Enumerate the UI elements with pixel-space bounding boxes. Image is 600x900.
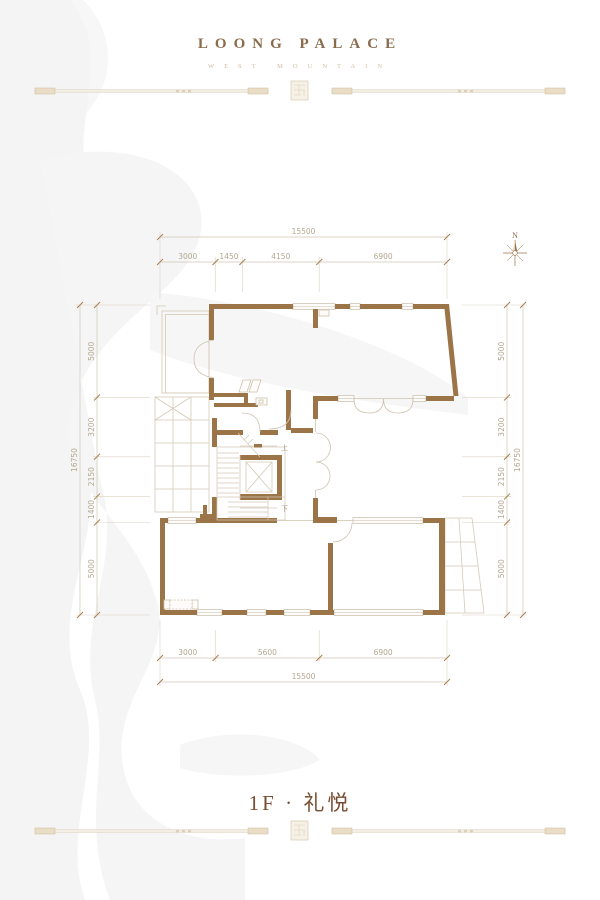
dim-label: 3200 [87,417,96,436]
rule-endcap [248,828,268,834]
dim-label: 5000 [497,342,506,361]
dim-label: 3200 [497,417,506,436]
floor-plan-svg: 上 下 N 1550030001450415069003000560069001… [0,0,600,900]
dim-label: 5000 [497,559,506,578]
dim-label: 16750 [513,448,522,472]
dim-label: 15500 [292,672,316,681]
dim-label: 6900 [374,252,393,261]
rule-endcap [332,88,352,94]
dim-label: 1450 [219,252,238,261]
dim-label: 3000 [178,648,197,657]
dimension-row: 15500 [157,672,450,685]
dim-label: 6900 [374,648,393,657]
dim-label: 4150 [271,252,290,261]
dimension-row: 300056006900 [157,648,450,661]
dimension-row: 3000145041506900 [157,252,450,265]
compass-north-label: N [512,231,518,240]
dim-label: 2150 [87,467,96,486]
rule-endcap [545,88,565,94]
trellis-grid-left [155,397,209,512]
rule-endcap [545,828,565,834]
dim-label: 16750 [70,448,79,472]
header: LOONG PALACE WEST MOUNTAIN [0,36,600,70]
dimension-column: 50003200215014005000 [497,302,510,618]
dim-label: 5000 [87,342,96,361]
floorplan-page: 上 下 N 1550030001450415069003000560069001… [0,0,600,900]
top-rule [35,81,565,100]
compass-icon: N [503,231,527,266]
dim-label: 5600 [258,648,277,657]
rule-endcap [35,88,55,94]
dim-label: 5000 [87,559,96,578]
steps-grid-right [445,518,484,613]
project-subtitle: WEST MOUNTAIN [0,63,600,70]
staircase [217,433,285,520]
rule-endcap [248,88,268,94]
project-title: LOONG PALACE [0,36,600,53]
floor-title: 1F · 礼悦 [0,787,600,817]
dim-label: 1400 [87,500,96,519]
rule-endcap [332,828,352,834]
dim-label: 3000 [178,252,197,261]
rule-endcap [35,828,55,834]
dim-label: 1400 [497,500,506,519]
stair-down-label: 下 [281,505,288,513]
seal-ornament [291,81,308,100]
seal-ornament [291,821,308,840]
dimension-column: 16750 [513,302,526,618]
stair-arrow-mark [254,444,262,448]
dim-label: 15500 [292,227,316,236]
dim-label: 2150 [497,467,506,486]
elevator [240,455,272,500]
stair-up-label: 上 [281,443,288,452]
